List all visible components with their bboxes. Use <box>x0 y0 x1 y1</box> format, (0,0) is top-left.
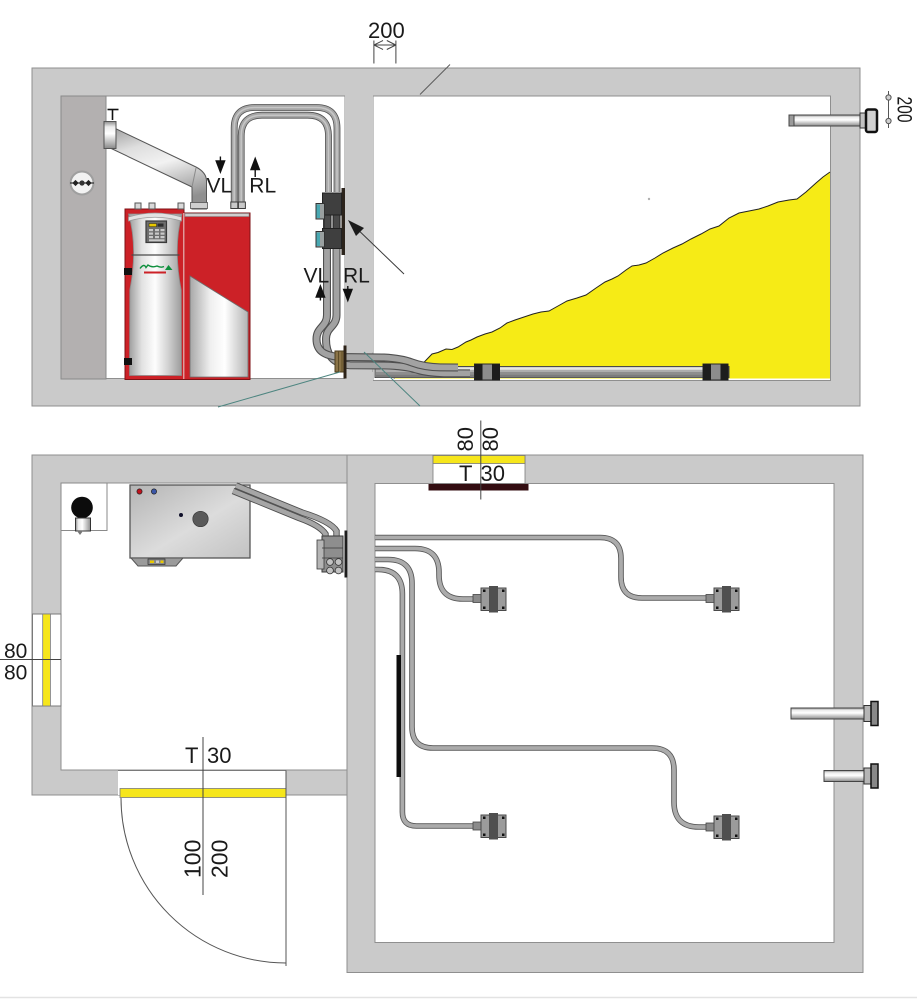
svg-text:200: 200 <box>893 97 916 123</box>
svg-text:30: 30 <box>207 743 231 768</box>
svg-text:T: T <box>185 743 198 768</box>
svg-text:30: 30 <box>481 461 505 486</box>
svg-text:VL: VL <box>304 265 330 288</box>
svg-text:80: 80 <box>4 640 27 663</box>
svg-text:RL: RL <box>343 265 370 288</box>
svg-text:T: T <box>459 461 472 486</box>
svg-text:80: 80 <box>4 662 27 685</box>
svg-text:200: 200 <box>207 840 233 878</box>
svg-text:RL: RL <box>249 175 276 198</box>
svg-text:80: 80 <box>478 427 503 451</box>
svg-text:200: 200 <box>368 18 405 43</box>
svg-text:100: 100 <box>180 840 206 878</box>
svg-text:VL: VL <box>207 175 233 198</box>
svg-text:80: 80 <box>453 427 478 451</box>
